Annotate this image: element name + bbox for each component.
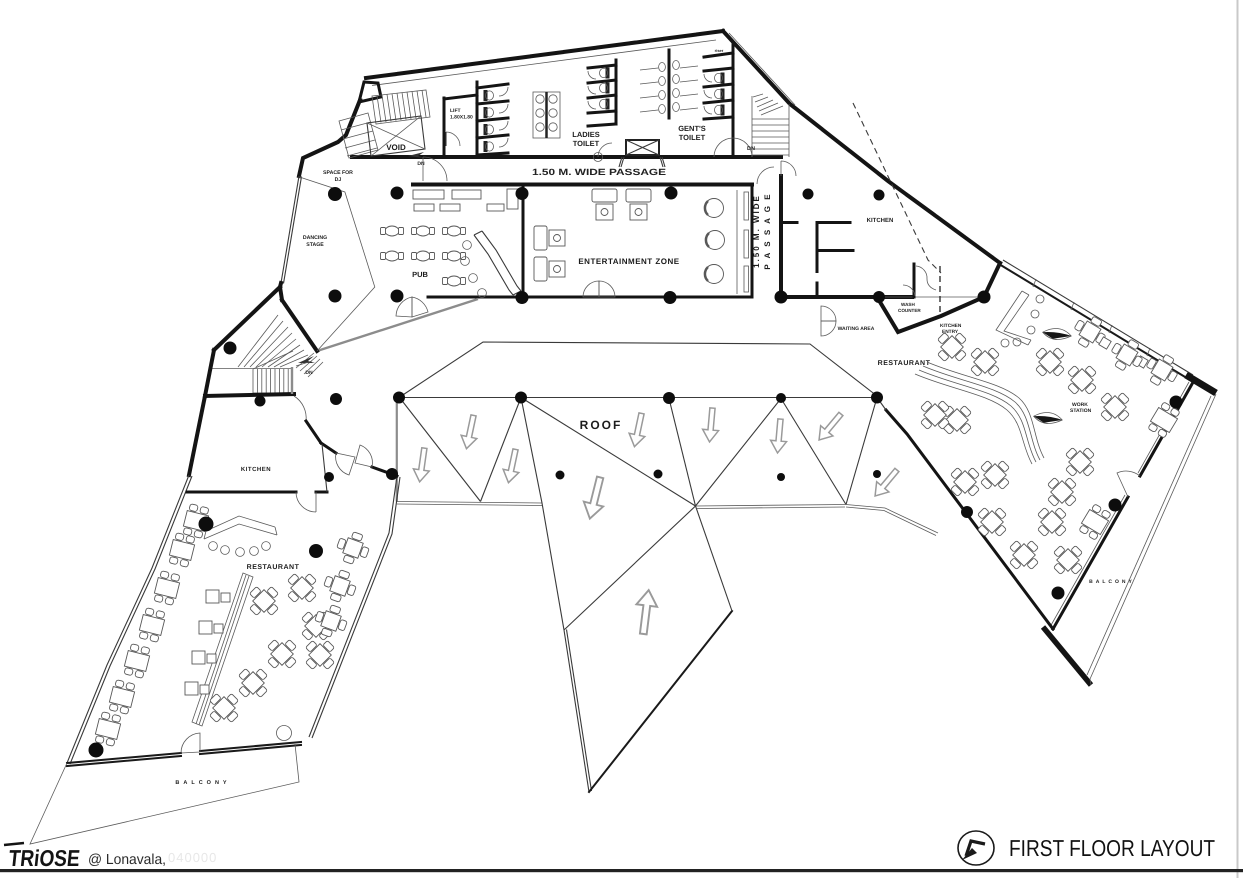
svg-text:RESTAURANT: RESTAURANT (878, 360, 931, 367)
svg-text:KITCHEN: KITCHEN (241, 466, 271, 473)
svg-text:VOID: VOID (386, 143, 406, 152)
svg-text:LADIES: LADIES (572, 130, 600, 139)
svg-text:DANCING: DANCING (303, 235, 327, 241)
svg-text:FIRST FLOOR LAYOUT: FIRST FLOOR LAYOUT (1009, 835, 1215, 861)
svg-text:DN: DN (417, 161, 425, 167)
svg-text:@ Lonavala,: @ Lonavala, (88, 852, 166, 868)
svg-text:PUB: PUB (412, 270, 428, 279)
svg-text:040000: 040000 (168, 850, 217, 865)
svg-text:DN: DN (305, 370, 313, 376)
svg-text:TOILET: TOILET (679, 133, 706, 142)
svg-text:STAGE: STAGE (306, 242, 324, 248)
svg-text:WAITING AREA: WAITING AREA (838, 326, 875, 332)
svg-text:1.50 M. WIDE: 1.50 M. WIDE (752, 194, 761, 268)
svg-text:SPACE FOR: SPACE FOR (323, 170, 353, 176)
svg-text:1.50 M. WIDE PASSAGE: 1.50 M. WIDE PASSAGE (532, 167, 666, 177)
svg-text:ROOF: ROOF (580, 418, 623, 432)
svg-text:BALCONY: BALCONY (1089, 579, 1135, 585)
svg-text:STATION: STATION (1070, 408, 1092, 414)
svg-text:COUNTER: COUNTER (898, 308, 921, 313)
svg-text:WASH: WASH (901, 302, 915, 307)
svg-text:GENT'S: GENT'S (678, 124, 706, 133)
svg-text:1.80X1.80: 1.80X1.80 (450, 115, 473, 121)
svg-text:KITCHEN: KITCHEN (867, 217, 894, 224)
svg-text:P A S S A G E: P A S S A G E (763, 192, 772, 269)
svg-text:riser: riser (715, 48, 724, 53)
svg-text:LIFT: LIFT (450, 108, 461, 114)
svg-text:RESTAURANT: RESTAURANT (247, 564, 300, 571)
svg-text:DJ: DJ (335, 177, 342, 183)
svg-text:KITCHEN: KITCHEN (940, 323, 962, 329)
svg-text:TRiOSE: TRiOSE (7, 845, 81, 871)
svg-text:BALCONY: BALCONY (175, 780, 230, 786)
svg-text:TOILET: TOILET (573, 139, 600, 148)
svg-text:DN: DN (747, 146, 755, 152)
svg-text:ENTERTAINMENT ZONE: ENTERTAINMENT ZONE (578, 257, 679, 266)
